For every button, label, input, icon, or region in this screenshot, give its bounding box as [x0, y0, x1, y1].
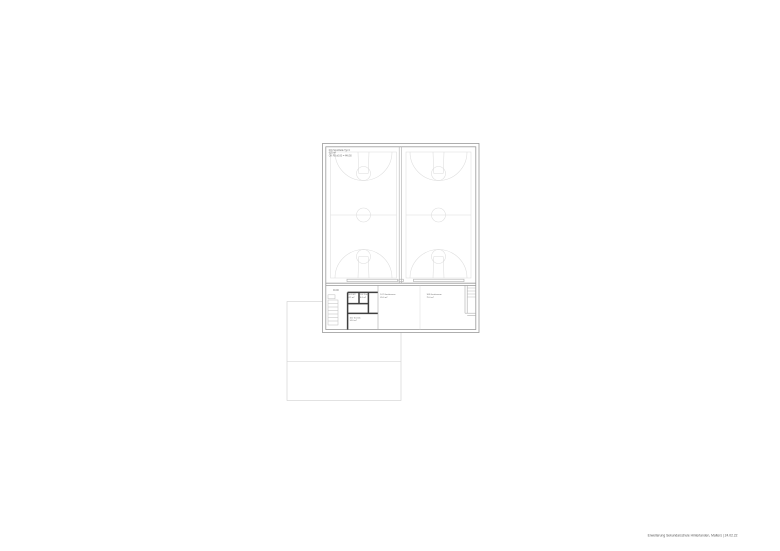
room-name: 101 WC	[348, 294, 356, 296]
level-label: ±0.00	[333, 290, 339, 292]
room-area: 75.0 m²	[427, 296, 434, 299]
room-name: 105 Technik	[350, 318, 362, 320]
hall-label-line1: 001 Sporthalle Typ C	[329, 149, 351, 152]
drawing-page: 001 Sporthalle Typ C 625 m² OK FB ±0.00 …	[0, 0, 780, 551]
room-name: 107 Geräteraum	[380, 293, 395, 296]
room-name: 102 Putzr.	[360, 293, 370, 296]
hall-label-line3: OK FB ±0.00 = 446.50	[329, 155, 353, 157]
hall-label-line2: 625 m²	[329, 152, 336, 155]
footer-caption: Erweiterung Sekundarschule Hinterlanden,…	[648, 534, 738, 538]
room-name: 108 Geräteraum	[427, 293, 442, 296]
sports-hall-building	[323, 144, 480, 333]
room-area: 14.0 m²	[350, 319, 357, 322]
room-area: 65.0 m²	[380, 296, 387, 299]
floor-plan-svg: 001 Sporthalle Typ C 625 m² OK FB ±0.00 …	[0, 0, 780, 551]
room-area: 4.5 m²	[348, 296, 354, 299]
room-area: 6.0 m²	[360, 296, 366, 299]
